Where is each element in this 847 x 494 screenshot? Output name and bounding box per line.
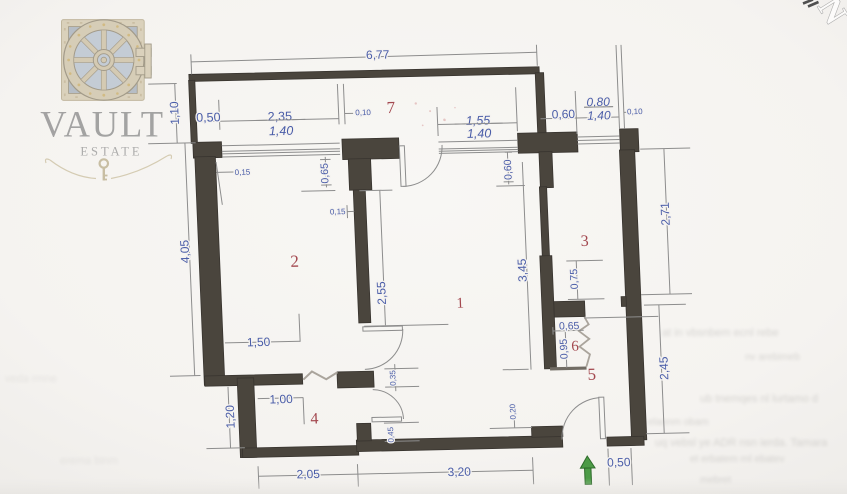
svg-text:3: 3 [580, 233, 589, 250]
svg-text:0,75: 0,75 [568, 269, 581, 290]
svg-text:elannm obam: elannm obam [648, 417, 709, 428]
svg-text:0,15: 0,15 [235, 168, 251, 177]
svg-text:2,35: 2,35 [267, 109, 292, 124]
svg-text:0,60: 0,60 [502, 159, 515, 180]
svg-text:5: 5 [587, 365, 596, 384]
svg-text:3,20: 3,20 [447, 465, 471, 480]
svg-text:0,20: 0,20 [508, 403, 518, 419]
svg-text:2,45: 2,45 [656, 356, 671, 380]
svg-text:nv arebimeb: nv arebimeb [745, 352, 800, 363]
svg-text:VAULT: VAULT [40, 104, 165, 145]
svg-text:1,20: 1,20 [223, 405, 238, 429]
svg-text:2,71: 2,71 [658, 202, 673, 226]
svg-text:0,35: 0,35 [388, 370, 398, 386]
svg-text:2,55: 2,55 [374, 281, 389, 305]
svg-text:0,50: 0,50 [196, 110, 221, 125]
svg-text:6: 6 [571, 339, 580, 355]
svg-text:1,40: 1,40 [587, 108, 611, 123]
svg-text:1: 1 [456, 296, 464, 312]
svg-text:veda rmne: veda rmne [5, 373, 57, 385]
svg-text:at in vbsnbem ecnl rebe: at in vbsnbem ecnl rebe [662, 327, 779, 339]
svg-text:4,05: 4,05 [177, 239, 192, 263]
svg-text:0,60: 0,60 [551, 107, 575, 122]
svg-text:2: 2 [290, 252, 299, 271]
svg-text:1,40: 1,40 [467, 126, 492, 141]
svg-text:et erbatem rnl ebatev: et erbatem rnl ebatev [690, 454, 785, 465]
svg-text:erema binm: erema binm [60, 455, 118, 467]
svg-text:ESTATE: ESTATE [80, 145, 142, 159]
svg-text:0,65: 0,65 [319, 163, 332, 184]
svg-text:7: 7 [386, 98, 396, 117]
svg-text:6,77: 6,77 [366, 48, 390, 63]
svg-text:0,10: 0,10 [355, 108, 371, 117]
svg-text:3,45: 3,45 [515, 258, 530, 282]
svg-text:4: 4 [310, 410, 319, 427]
svg-text:1,40: 1,40 [269, 124, 294, 139]
svg-text:1,50: 1,50 [247, 335, 271, 350]
svg-text:0,65: 0,65 [559, 320, 580, 332]
svg-text:0,50: 0,50 [607, 455, 631, 470]
svg-text:0,10: 0,10 [627, 107, 643, 116]
svg-text:uq vebsl ye ADR nsn ierda. Tam: uq vebsl ye ADR nsn ierda. Tamara [655, 437, 828, 449]
svg-text:0,15: 0,15 [330, 207, 346, 216]
svg-text:0,45: 0,45 [386, 426, 396, 442]
svg-text:0,95: 0,95 [558, 339, 571, 360]
svg-text:1,10: 1,10 [167, 101, 182, 125]
svg-text:1,00: 1,00 [269, 392, 293, 407]
svg-text:ub tnemqes nl lurtamo d: ub tnemqes nl lurtamo d [700, 393, 818, 405]
